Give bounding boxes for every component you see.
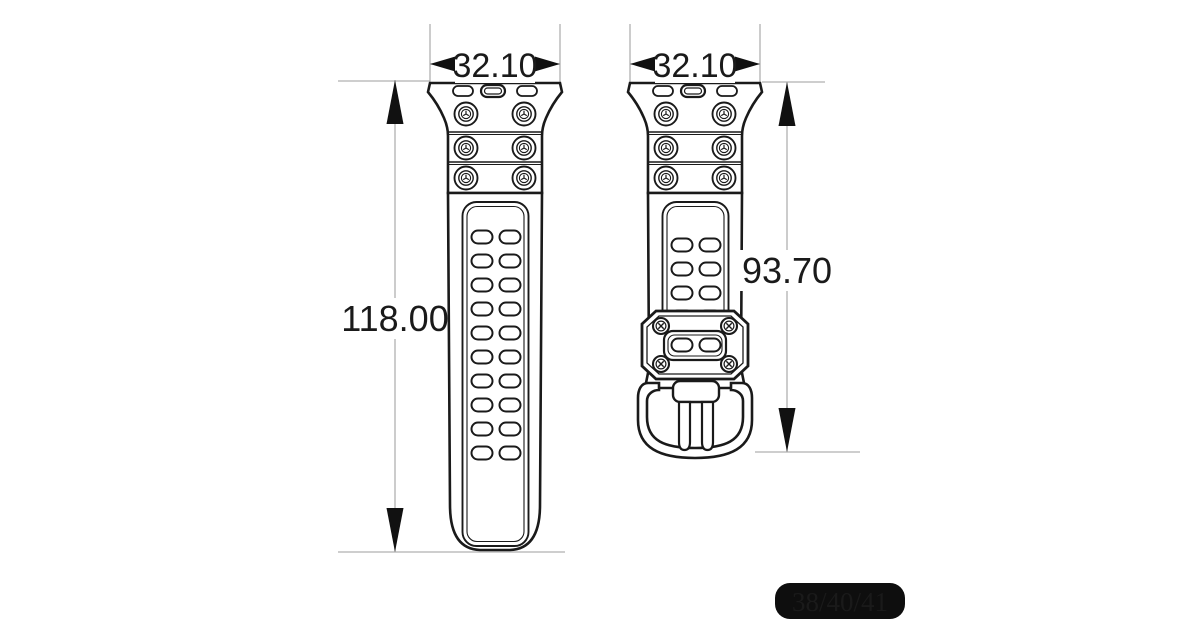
- dim-width-left: 32.10: [452, 47, 537, 85]
- dim-length-right: 93.70: [742, 250, 832, 291]
- lug-connector: [628, 83, 762, 193]
- lug-connector: [428, 83, 562, 193]
- arrow-down-icon: [779, 408, 796, 452]
- buckle-tongue: [673, 381, 719, 450]
- dim-width-right: 32.10: [652, 47, 737, 85]
- dim-length-left: 118.00: [341, 298, 448, 339]
- watch-band-drawing: 32.10 32.10 118.00 93.70 38/40/41: [0, 0, 1200, 630]
- dimension-diagram: 32.10 32.10 118.00 93.70 38/40/41: [0, 0, 1200, 630]
- size-badge-text: 38/40/41: [792, 587, 888, 617]
- arrow-up-icon: [779, 82, 796, 126]
- size-badge: 38/40/41: [775, 583, 905, 619]
- arrow-down-icon: [387, 508, 404, 552]
- connector-slots: [453, 85, 537, 97]
- connector-slots: [653, 85, 737, 97]
- arrow-up-icon: [387, 80, 404, 124]
- keeper-plate: [642, 311, 748, 379]
- dimension-labels: 32.10 32.10 118.00 93.70: [341, 46, 838, 339]
